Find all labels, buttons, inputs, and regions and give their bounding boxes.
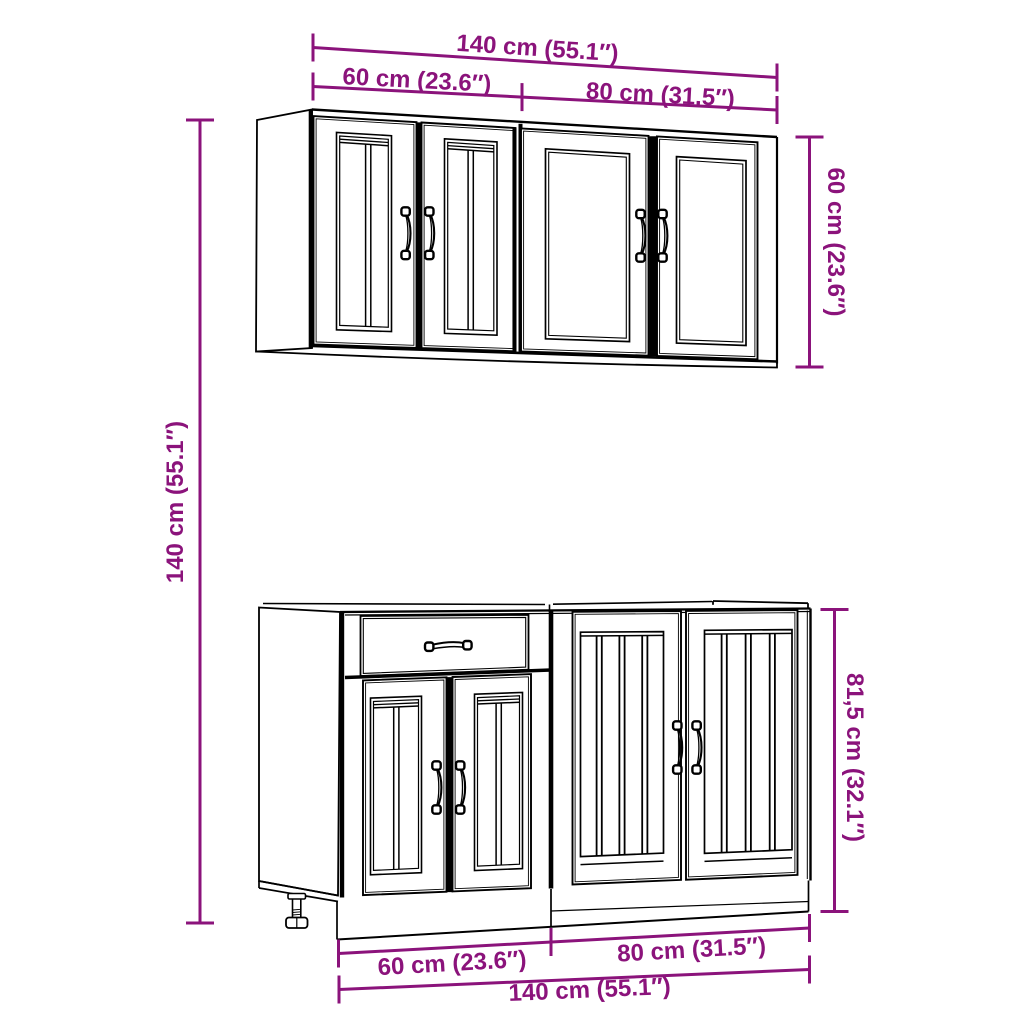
svg-text:60 cm (23.6″): 60 cm (23.6″) [822, 168, 849, 317]
svg-text:81,5 cm (32.1″): 81,5 cm (32.1″) [841, 673, 868, 842]
svg-text:140 cm (55.1″): 140 cm (55.1″) [162, 421, 189, 583]
